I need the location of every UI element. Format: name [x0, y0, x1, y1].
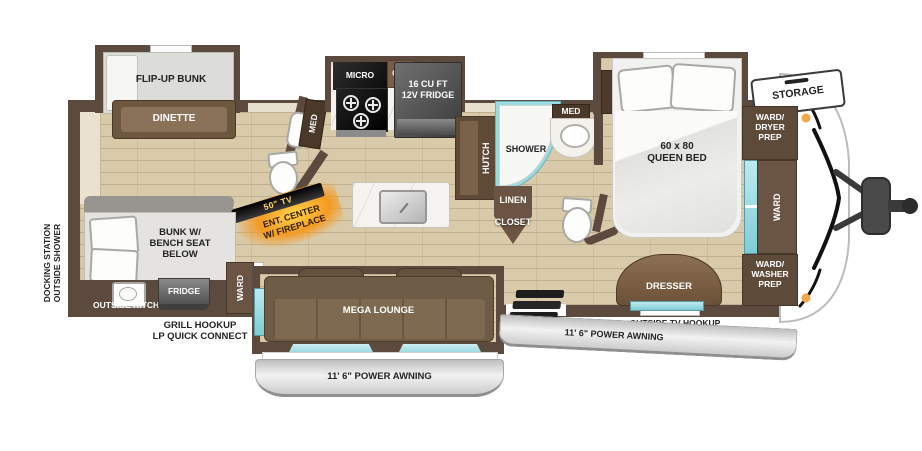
stove-front-edge: [336, 130, 386, 137]
burner-icon: [343, 95, 359, 111]
microwave: MICRO: [333, 62, 387, 90]
docking-station-label: DOCKING STATION OUTSIDE SHOWER: [42, 207, 66, 319]
hatch-handle: [784, 78, 808, 85]
ward-washer-cabinet: WARD/ WASHER PREP: [742, 254, 798, 306]
propane-cover: [862, 178, 890, 234]
power-awning-bottom-label: 11' 6" POWER AWNING: [256, 371, 503, 382]
bath-med-label: MED: [553, 106, 589, 116]
front-ward-label: WARD: [758, 161, 796, 253]
rear-ward-label: WARD: [227, 263, 253, 313]
mega-lounge-label: MEGA LOUNGE: [301, 305, 456, 316]
fridge-lower-panel: [397, 119, 459, 135]
fridge-12v: 16 CU FT 12V FRIDGE: [394, 62, 462, 138]
hutch-cabinet: HUTCH: [455, 116, 499, 200]
bed-pillow: [617, 64, 677, 114]
dresser-counter: [630, 301, 704, 311]
faucet-handle: [399, 203, 408, 213]
clearance-light: [802, 294, 811, 303]
outside-fridge-shadow: [158, 304, 208, 310]
comforter: [615, 111, 737, 233]
sink-basin: [119, 287, 137, 301]
mega-lounge-sofa: MEGA LOUNGE: [264, 276, 494, 342]
bunk-bench-label: BUNK W/ BENCH SEAT BELOW: [130, 227, 230, 261]
floorplan-canvas: DOCKING STATION OUTSIDE SHOWER GRILL HOO…: [0, 0, 922, 451]
power-awning-bottom: 11' 6" POWER AWNING: [255, 359, 504, 397]
burner-icon: [353, 113, 369, 129]
dinette-booth: DINETTE: [112, 100, 236, 139]
ward-dryer-label: WARD/ DRYER PREP: [743, 112, 797, 142]
fridge-12v-label: 16 CU FT 12V FRIDGE: [395, 79, 461, 100]
bed-pillow: [669, 63, 736, 113]
power-awning-right: 11' 6" POWER AWNING: [498, 314, 797, 361]
power-awning-right-label: 11' 6" POWER AWNING: [556, 327, 672, 343]
front-ward-cabinet: WARD: [757, 160, 797, 254]
shower-label: SHOWER: [498, 144, 554, 155]
dresser-label: DRESSER: [617, 281, 721, 292]
flip-up-bunk-label: FLIP-UP BUNK: [112, 74, 230, 86]
outside-fridge: FRIDGE: [158, 278, 210, 306]
queen-bed-label: 60 x 80 QUEEN BED: [613, 141, 741, 165]
queen-bed: 60 x 80 QUEEN BED: [612, 58, 742, 238]
closet-label: CLOSET: [488, 217, 538, 228]
kitchen-island: [352, 182, 450, 228]
step: [512, 301, 561, 309]
burner-icon: [365, 97, 381, 113]
window-slot: [150, 45, 192, 53]
storage-label: STORAGE: [754, 82, 843, 105]
rear-ward-cabinet: WARD: [226, 262, 254, 314]
ward-washer-label: WARD/ WASHER PREP: [743, 259, 797, 289]
island-sink: [379, 190, 427, 224]
step: [515, 290, 564, 298]
vanity-basin: [560, 124, 590, 148]
dinette-label: DINETTE: [113, 113, 235, 125]
bath-vanity: [550, 118, 596, 158]
cooktop: [336, 88, 388, 132]
rear-counter: [80, 112, 101, 204]
ward-dryer-cabinet: WARD/ DRYER PREP: [742, 106, 798, 160]
micro-label: MICRO: [333, 70, 387, 80]
grill-hookup-label: GRILL HOOKUP LP QUICK CONNECT: [140, 320, 260, 342]
linen-label: LINEN: [492, 195, 534, 206]
clearance-light: [802, 114, 811, 123]
outside-fridge-label: FRIDGE: [159, 286, 209, 296]
hitch-ball: [902, 198, 918, 214]
